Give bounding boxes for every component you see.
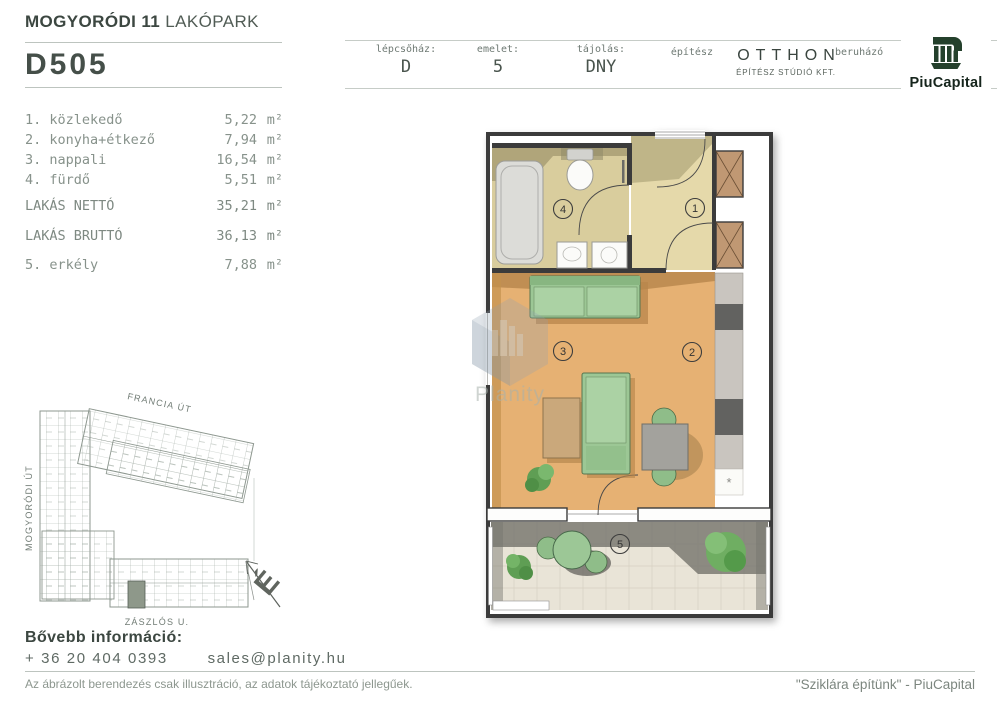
orientation-cell: tájolás: DNY <box>551 41 651 77</box>
room-row: 2. konyha+étkező 7,94 m² <box>25 130 283 150</box>
gross-label: LAKÁS BRUTTÓ <box>25 226 216 246</box>
floor-cell: emelet: 5 <box>453 41 543 77</box>
footer-divider <box>25 671 975 672</box>
balcony-railing-left <box>489 527 493 605</box>
piucapital-logo-icon <box>924 34 968 72</box>
net-area: 35,21 <box>216 196 257 216</box>
room-area: 5,51 <box>224 170 257 190</box>
phone-number: + 36 20 404 0393 <box>25 650 168 667</box>
developer-name: PiuCapital <box>901 75 991 91</box>
room-number-2: 2 <box>689 347 695 359</box>
balcony-railing-right <box>766 527 770 605</box>
room-row: 3. nappali 16,54 m² <box>25 150 283 170</box>
room-label: 2. konyha+étkező <box>25 130 224 150</box>
gross-unit: m² <box>257 226 283 246</box>
balcony-row: 5. erkély 7,88 m² <box>25 255 283 275</box>
balcony-area: 7,88 <box>224 255 257 275</box>
staircase-value: D <box>360 57 452 77</box>
architect-subtitle: ÉPÍTÉSZ STÚDIÓ KFT. <box>720 68 852 77</box>
staircase-label: lépcsőház: <box>360 44 452 55</box>
room-row: 4. fürdő 5,51 m² <box>25 170 283 190</box>
building-outline <box>40 409 256 607</box>
floor-label: emelet: <box>453 44 543 55</box>
coffee-table <box>543 398 585 463</box>
room-label: 3. nappali <box>25 150 216 170</box>
project-title-light: LAKÓPARK <box>165 12 259 31</box>
title-divider-bottom <box>25 87 282 88</box>
kitchen-counter: * <box>715 273 743 495</box>
room-list: 1. közlekedő 5,22 m² 2. konyha+étkező 7,… <box>25 110 283 275</box>
sink <box>557 242 587 268</box>
washing-machine <box>592 242 627 268</box>
balcony-unit: m² <box>257 255 283 275</box>
room-unit: m² <box>257 130 283 150</box>
more-info-label: Bővebb információ: <box>25 629 182 647</box>
floorplan-datasheet: { "page": {"title_bold": "MOGYORÓDI 11",… <box>0 0 1000 707</box>
architect-name: OTTHON <box>720 47 852 65</box>
project-title: MOGYORÓDI 11 LAKÓPARK <box>25 12 259 32</box>
room-unit: m² <box>257 170 283 190</box>
title-divider-top <box>25 42 282 43</box>
room-label: 4. fürdő <box>25 170 224 190</box>
floor-plan: * <box>483 123 775 625</box>
orientation-label: tájolás: <box>551 44 651 55</box>
unit-id: D505 <box>25 48 109 82</box>
architect-label: építész <box>647 47 713 58</box>
project-title-bold: MOGYORÓDI 11 <box>25 12 160 31</box>
room-unit: m² <box>257 150 283 170</box>
room-number-5: 5 <box>617 539 623 551</box>
entry-door <box>655 130 705 139</box>
armchair <box>582 373 635 478</box>
room-label: 1. közlekedő <box>25 110 224 130</box>
room-unit: m² <box>257 110 283 130</box>
room-number-4: 4 <box>560 204 566 216</box>
balcony-label: 5. erkély <box>25 255 224 275</box>
bathtub <box>496 161 543 264</box>
disclaimer-text: Az ábrázolt berendezés csak illusztráció… <box>25 677 413 691</box>
balcony <box>489 522 771 610</box>
highlighted-unit <box>128 581 145 608</box>
developer-logo-block: PiuCapital <box>901 34 991 95</box>
kitchen-star-symbol: * <box>726 475 731 490</box>
net-label: LAKÁS NETTÓ <box>25 196 216 216</box>
company-slogan: "Sziklára építünk" - PiuCapital <box>796 677 975 692</box>
toilet <box>567 149 593 190</box>
room-number-3: 3 <box>560 346 566 358</box>
balcony-table <box>553 531 591 569</box>
info-bar: lépcsőház: D emelet: 5 tájolás: DNY épít… <box>345 40 997 89</box>
sofa <box>530 276 648 324</box>
street-label-left: MOGYORÓDI ÚT <box>24 465 34 551</box>
orientation-value: DNY <box>551 57 651 77</box>
gross-area: 36,13 <box>216 226 257 246</box>
room-number-1: 1 <box>692 203 698 215</box>
net-unit: m² <box>257 196 283 216</box>
street-label-bottom: ZÁSZLÓS U. <box>125 617 190 627</box>
north-compass-icon: É <box>232 545 297 620</box>
street-label-top: FRANCIA ÚT <box>127 391 193 414</box>
room-row: 1. közlekedő 5,22 m² <box>25 110 283 130</box>
room-area: 16,54 <box>216 150 257 170</box>
developer-label: beruházó <box>835 47 895 58</box>
gross-area-row: LAKÁS BRUTTÓ 36,13 m² <box>25 226 283 246</box>
staircase-cell: lépcsőház: D <box>360 41 452 77</box>
room-area: 7,94 <box>224 130 257 150</box>
net-area-row: LAKÁS NETTÓ 35,21 m² <box>25 196 283 216</box>
room-area: 5,22 <box>224 110 257 130</box>
architect-block: OTTHON ÉPÍTÉSZ STÚDIÓ KFT. <box>720 47 852 77</box>
email-address: sales@planity.hu <box>208 650 347 667</box>
floor-value: 5 <box>453 57 543 77</box>
window-left <box>486 313 491 385</box>
contact-line: + 36 20 404 0393 sales@planity.hu <box>25 650 347 667</box>
